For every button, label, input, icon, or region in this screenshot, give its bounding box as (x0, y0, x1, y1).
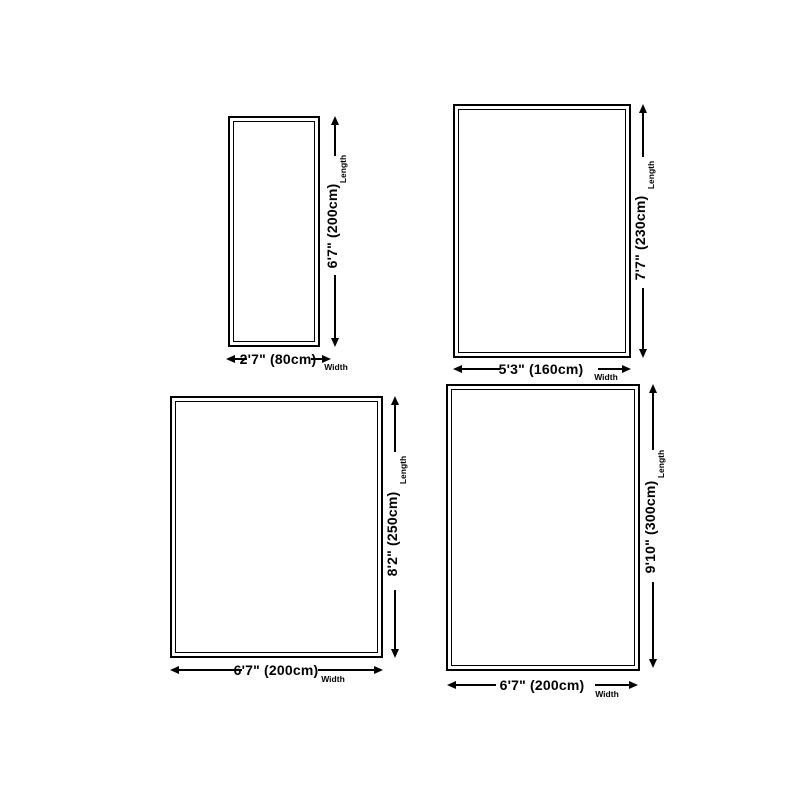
length-label: Length (338, 155, 348, 183)
rug-outline-inner (233, 121, 315, 342)
rug-outline (170, 396, 383, 658)
arrow-right-icon (374, 666, 383, 674)
width-arrow-line (454, 684, 496, 686)
length-label: Length (656, 450, 666, 478)
width-arrow-line (460, 368, 500, 370)
length-value: 8'2" (250cm) (384, 492, 400, 577)
arrow-down-icon (649, 659, 657, 668)
rug-outline (453, 104, 631, 358)
length-value: 6'7" (200cm) (324, 184, 340, 269)
length-label: Length (646, 161, 656, 189)
length-arrow-line (334, 275, 336, 339)
size-guide-diagram: Length 6'7" (200cm) 2'7" (80cm) Width Le… (0, 0, 800, 800)
length-arrow-line (394, 590, 396, 650)
width-value: 2'7" (80cm) (240, 351, 317, 367)
length-arrow-line (642, 111, 644, 157)
length-value: 7'7" (230cm) (632, 196, 648, 281)
rug-outline-inner (458, 109, 626, 353)
width-value: 5'3" (160cm) (499, 361, 584, 377)
width-arrow-line (318, 669, 374, 671)
length-arrow-line (652, 582, 654, 660)
width-label: Width (321, 674, 345, 684)
length-arrow-line (394, 403, 396, 452)
arrow-down-icon (331, 338, 339, 347)
width-arrow-line (177, 669, 242, 671)
width-label: Width (324, 362, 348, 372)
rug-outline (446, 384, 640, 671)
length-arrow-line (642, 288, 644, 350)
length-arrow-line (652, 391, 654, 450)
width-label: Width (595, 689, 619, 699)
rug-outline-inner (175, 401, 378, 653)
length-label: Length (398, 456, 408, 484)
arrow-down-icon (639, 349, 647, 358)
width-arrow-line (595, 684, 629, 686)
width-label: Width (594, 372, 618, 382)
width-value: 6'7" (200cm) (500, 677, 585, 693)
rug-outline (228, 116, 320, 347)
rug-outline-inner (451, 389, 635, 666)
arrow-right-icon (622, 365, 631, 373)
arrow-down-icon (391, 649, 399, 658)
arrow-right-icon (629, 681, 638, 689)
width-value: 6'7" (200cm) (234, 662, 319, 678)
length-value: 9'10" (300cm) (642, 481, 658, 574)
width-arrow-line (598, 368, 622, 370)
length-arrow-line (334, 123, 336, 156)
